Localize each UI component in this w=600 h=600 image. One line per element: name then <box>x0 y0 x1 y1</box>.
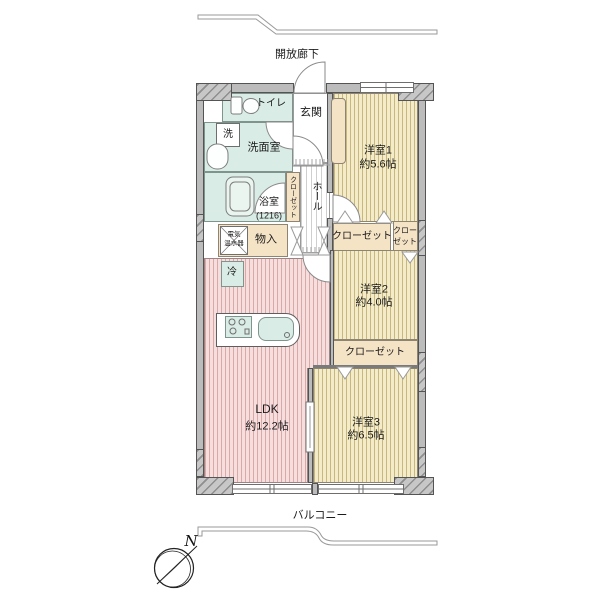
sink-icon <box>258 317 294 341</box>
balcony-rail <box>198 527 437 545</box>
wall-hatch-left-mid <box>196 214 204 242</box>
heater-label-1: 電気 <box>228 232 241 239</box>
wall-top-mid-seg <box>326 83 362 93</box>
corridor-rail <box>198 15 437 34</box>
wall-ldk-room2 <box>330 250 334 368</box>
wall-ldk-room3 <box>308 368 313 483</box>
entrance-floor <box>293 93 330 163</box>
ldk-size-label: 約12.2帖 <box>245 422 288 433</box>
room3-size-label: 約6.5帖 <box>347 431 384 442</box>
room1-size-label: 約5.6帖 <box>359 160 396 171</box>
wall-left <box>196 93 204 483</box>
room2-label: 洋室2 <box>360 285 388 296</box>
room1-label: 洋室1 <box>364 146 392 157</box>
fridge-label: 冷 <box>227 268 237 278</box>
window-room1 <box>360 82 414 93</box>
storage-label: 物入 <box>255 235 277 246</box>
compass-needle <box>159 546 197 583</box>
hall-label: ホール <box>310 181 320 211</box>
toilet-label: トイレ <box>256 99 286 109</box>
floor-plan: N 開放廊下 トイレ 玄関 洗 洗面室 浴室 (1216) クローゼット ホール… <box>0 0 600 600</box>
window-ldk-balcony <box>232 484 312 494</box>
heater-label-2: 温水器 <box>224 241 244 248</box>
room2-size-label: 約4.0帖 <box>355 298 392 309</box>
wall-closet2-room3 <box>313 365 418 368</box>
corridor-label: 開放廊下 <box>275 50 319 61</box>
washroom-label: 洗面室 <box>248 143 281 154</box>
entrance-label: 玄関 <box>300 108 322 119</box>
wall-hatch-right-mid <box>418 220 426 256</box>
compass-icon: N <box>155 532 199 588</box>
entrance-door-arc <box>294 62 325 93</box>
closet-room1-label: クローゼット <box>332 232 392 242</box>
bathroom-label: 浴室 <box>259 198 279 208</box>
window-room3-balcony <box>318 484 404 494</box>
compass-north-label: N <box>183 532 198 550</box>
balcony-label: バルコニー <box>293 511 348 522</box>
washer-label: 洗 <box>223 130 233 140</box>
bathroom-size-label: (1216) <box>256 212 282 221</box>
wall-hatch-bottom-left <box>196 477 234 495</box>
wall-hatch-right-bottom <box>418 447 426 477</box>
closet-small-label-1: クロー <box>393 227 417 235</box>
stove-icon <box>225 316 252 338</box>
shoe-cabinet <box>331 98 346 164</box>
wall-hatch-top-left <box>196 83 232 101</box>
closet-room2-label: クローゼット <box>345 348 405 358</box>
wall-hatch-right-low <box>418 352 426 392</box>
closet-small-label-2: ゼット <box>393 238 417 246</box>
wall-hatch-left-low <box>196 449 204 477</box>
wall-right <box>418 93 426 483</box>
hall-closet-label: クローゼット <box>290 176 297 218</box>
ldk-label: LDK <box>255 403 278 415</box>
room3-label: 洋室3 <box>352 418 380 429</box>
